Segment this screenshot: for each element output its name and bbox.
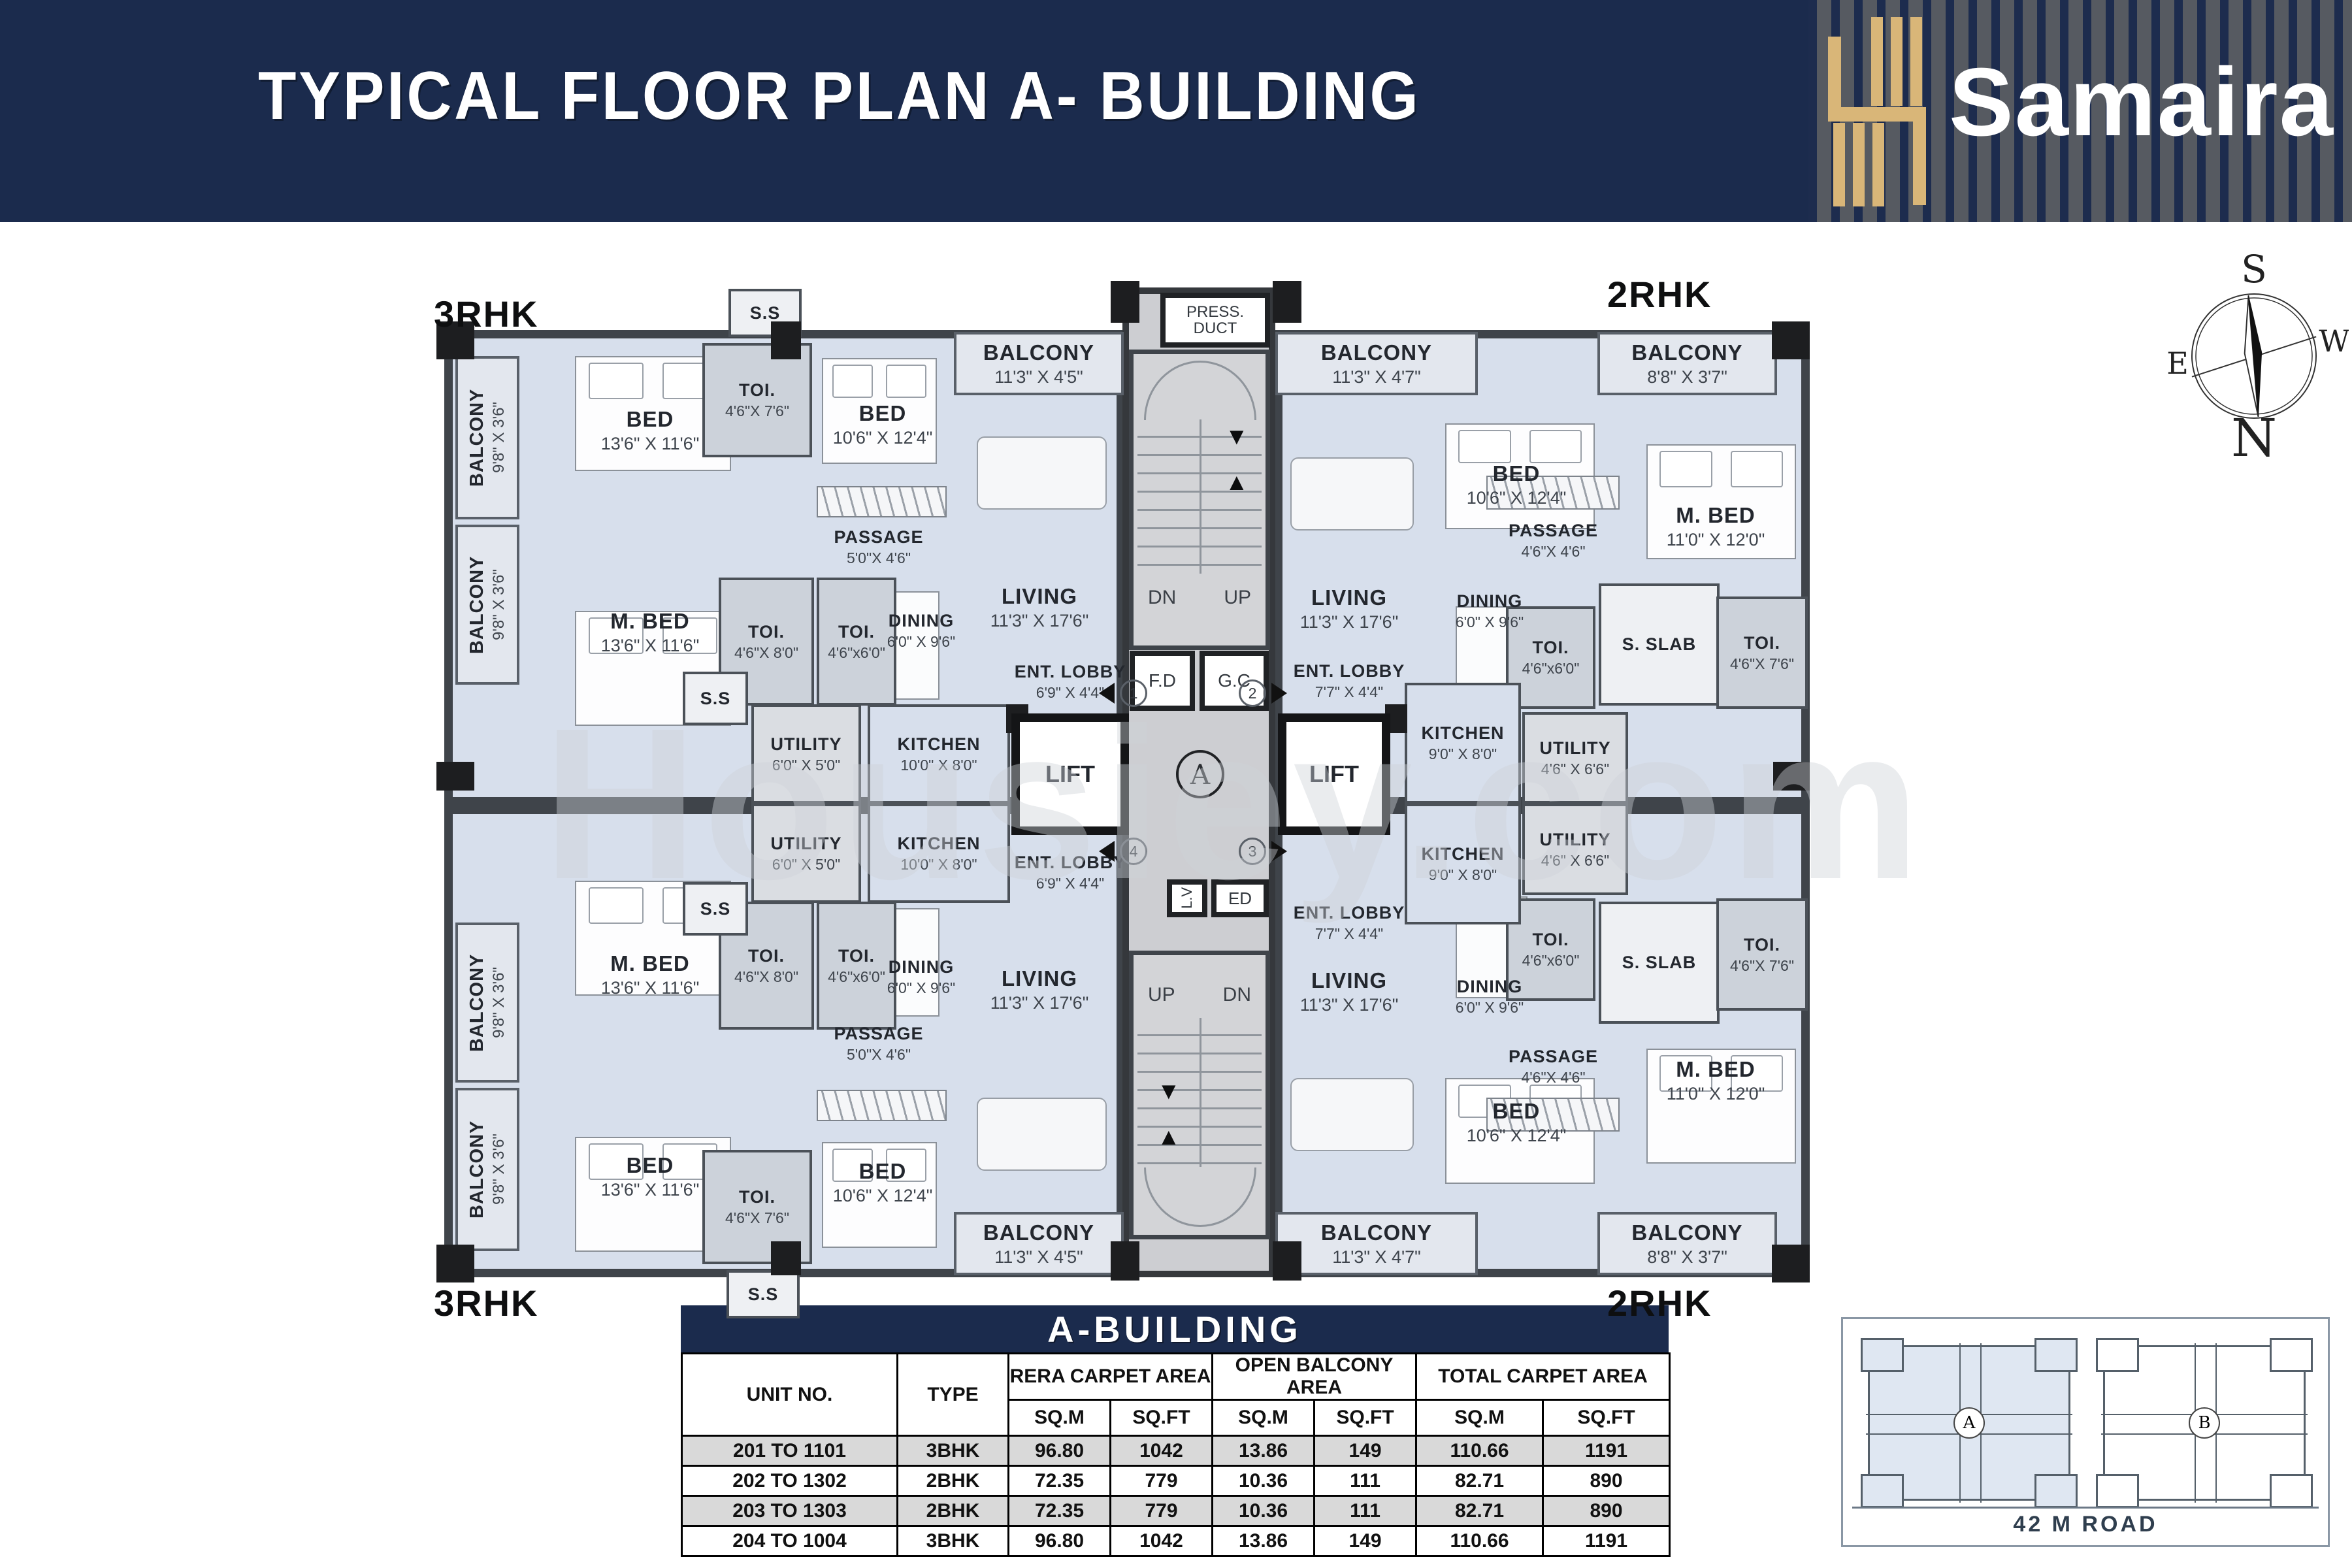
road-line (1852, 1507, 2319, 1509)
room-passage: PASSAGE5'0"X 4'6" (810, 1019, 947, 1068)
room-balcony: BALCONY9'8" X 3'6" (455, 356, 519, 519)
compass-south: S (2241, 248, 2267, 291)
room-utility: UTILITY4'6" X 6'6" (1522, 712, 1628, 804)
subcol-sqm: SQ.M (1009, 1400, 1111, 1436)
building-wing (1861, 1338, 1904, 1372)
unit-label-2rhk-bottom: 2RHK (1607, 1282, 1712, 1324)
compass-east: E (2166, 346, 2189, 381)
key-map-badge-b: B (2189, 1407, 2220, 1439)
arrow-down-icon: ▼ (1157, 1079, 1181, 1103)
room-kitchen: KITCHEN10'0" X 8'0" (868, 704, 1010, 804)
brand-panel: Samaira (1808, 0, 2352, 222)
key-map-badge-a: A (1953, 1407, 1985, 1439)
building-badge-a: A (1176, 750, 1224, 798)
stair-divider (1200, 419, 1201, 574)
wardrobe-hatch (817, 486, 947, 517)
table-title: A-BUILDING (681, 1305, 1669, 1352)
table-row: 204 TO 10043BHK 96.801042 13.86149 110.6… (682, 1526, 1670, 1556)
room-master-bed: M. BED11'0" X 12'0" (1622, 953, 1810, 1209)
building-wing (2096, 1338, 2139, 1372)
compass-rose: S N E W (2166, 248, 2349, 464)
room-living: LIVING11'3" X 17'6" (1284, 570, 1414, 648)
header-bar: TYPICAL FLOOR PLAN A- BUILDING Samaira (0, 0, 2352, 222)
building-wing (1861, 1474, 1904, 1508)
entry-marker-1: 1 (1099, 679, 1147, 707)
room-bed: BED13'6" X 11'6" (523, 345, 777, 516)
sofa-furniture (1290, 1078, 1414, 1151)
lift-right: LIFT (1278, 713, 1390, 835)
room-master-bed: M. BED13'6" X 11'6" (523, 862, 777, 1087)
room-bed: BED10'6" X 12'4" (817, 1124, 948, 1241)
door-triangle-icon (1099, 683, 1115, 704)
room-service-shaft: S.S (727, 1270, 800, 1318)
building-wing (2034, 1474, 2078, 1508)
col-open-balcony-area: OPEN BALCONY AREA (1213, 1354, 1416, 1400)
col-type: TYPE (898, 1354, 1009, 1436)
staircase-bottom: UP DN ▼ ▲ (1129, 951, 1270, 1239)
stair-arc (1144, 1168, 1256, 1227)
room-balcony: BALCONY11'3" X 4'7" (1275, 332, 1478, 395)
stair-dn-label: DN (1223, 984, 1251, 1006)
room-master-bed: M. BED11'0" X 12'0" (1622, 399, 1810, 655)
wall-column (1773, 762, 1810, 791)
room-balcony: BALCONY11'3" X 4'7" (1275, 1212, 1478, 1275)
room-living: LIVING11'3" X 17'6" (958, 568, 1121, 647)
entry-marker-4: 4 (1099, 838, 1147, 865)
room-bed: BED13'6" X 11'6" (523, 1091, 777, 1262)
unit-label-2rhk-top: 2RHK (1607, 273, 1712, 316)
wall-column (1273, 1241, 1301, 1281)
wall-column (436, 762, 474, 791)
key-map: A B 42 M ROAD (1841, 1317, 2330, 1547)
key-map-building-b: B (2103, 1345, 2306, 1501)
room-entrance-lobby: ENT. LOBBY7'7" X 4'4" (1284, 894, 1414, 951)
wall-column (1772, 1245, 1810, 1282)
building-wing (2034, 1338, 2078, 1372)
room-kitchen: KITCHEN9'0" X 8'0" (1405, 804, 1521, 924)
door-triangle-icon (1271, 841, 1287, 862)
room-passage: PASSAGE4'6"X 4'6" (1483, 516, 1624, 565)
stair-dn-label: DN (1148, 587, 1176, 609)
table-row: 201 TO 11013BHK 96.801042 13.86149 110.6… (682, 1436, 1670, 1466)
room-entrance-lobby: ENT. LOBBY7'7" X 4'4" (1284, 652, 1414, 710)
door-triangle-icon (1099, 841, 1115, 862)
subcol-sqft: SQ.FT (1543, 1400, 1670, 1436)
room-utility: UTILITY4'6" X 6'6" (1522, 804, 1628, 895)
room-balcony: BALCONY9'8" X 3'6" (455, 923, 519, 1083)
room-balcony: BALCONY8'8" X 3'7" (1597, 332, 1777, 395)
building-wing (2096, 1474, 2139, 1508)
unit-label-3rhk-top: 3RHK (434, 293, 538, 335)
wall-column (1111, 281, 1139, 323)
subcol-sqm: SQ.M (1416, 1400, 1543, 1436)
room-balcony: BALCONY8'8" X 3'7" (1597, 1212, 1777, 1275)
light-vent-box: L.V (1167, 879, 1207, 917)
table-row: 203 TO 13032BHK 72.35779 10.36111 82.718… (682, 1496, 1670, 1526)
stair-divider (1200, 1018, 1201, 1167)
room-balcony: BALCONY11'3" X 4'5" (954, 1212, 1124, 1275)
wall-column (1772, 321, 1810, 359)
lift-left: LIFT (1011, 713, 1129, 835)
room-passage: PASSAGE4'6"X 4'6" (1483, 1042, 1624, 1091)
room-kitchen: KITCHEN10'0" X 8'0" (868, 804, 1010, 903)
arrow-up-icon: ▲ (1225, 470, 1249, 494)
arrow-up-icon: ▲ (1157, 1125, 1181, 1149)
area-table: A-BUILDING UNIT NO. TYPE RERA CARPET ARE… (681, 1305, 1669, 1557)
compass-north: N (2231, 408, 2277, 464)
wall-column (1273, 281, 1301, 323)
stair-up-label: UP (1148, 984, 1175, 1006)
col-rera-carpet-area: RERA CARPET AREA (1009, 1354, 1213, 1400)
electrical-duct-box: ED (1211, 879, 1269, 917)
brand-name: Samaira (1949, 47, 2334, 158)
wall-column (771, 321, 801, 359)
sofa-furniture (977, 436, 1107, 510)
arrow-down-icon: ▼ (1225, 425, 1249, 448)
room-balcony: BALCONY9'8" X 3'6" (455, 1088, 519, 1251)
subcol-sqft: SQ.FT (1111, 1400, 1213, 1436)
sofa-furniture (1290, 457, 1414, 531)
entry-marker-3: 3 (1239, 838, 1287, 865)
wall-column (771, 1241, 801, 1275)
subcol-sqm: SQ.M (1213, 1400, 1315, 1436)
wardrobe-hatch (817, 1090, 947, 1121)
key-map-building-a: A (1868, 1345, 2070, 1501)
brand-logo-mark (1828, 17, 1939, 206)
building-wing (2270, 1338, 2313, 1372)
col-total-carpet-area: TOTAL CARPET AREA (1416, 1354, 1670, 1400)
stair-up-label: UP (1224, 587, 1251, 609)
building-wing (2270, 1474, 2313, 1508)
room-living: LIVING11'3" X 17'6" (958, 951, 1121, 1029)
table-row: 202 TO 13022BHK 72.35779 10.36111 82.718… (682, 1466, 1670, 1496)
wall-column (436, 1245, 474, 1282)
room-balcony: BALCONY9'8" X 3'6" (455, 525, 519, 685)
room-passage: PASSAGE5'0"X 4'6" (810, 523, 947, 572)
room-dining: DINING6'0" X 9'6" (1437, 574, 1542, 649)
subcol-sqft: SQ.FT (1315, 1400, 1416, 1436)
col-unit-no: UNIT NO. (682, 1354, 898, 1436)
room-master-bed: M. BED13'6" X 11'6" (523, 520, 777, 745)
door-triangle-icon (1271, 683, 1287, 704)
room-kitchen: KITCHEN9'0" X 8'0" (1405, 683, 1521, 804)
stair-arc (1144, 361, 1256, 420)
entry-marker-2: 2 (1239, 679, 1287, 707)
compass-west: W (2319, 323, 2349, 359)
press-duct: PRESS. DUCT (1160, 293, 1270, 348)
room-balcony: BALCONY11'3" X 4'5" (954, 332, 1124, 395)
unit-label-3rhk-bottom: 3RHK (434, 1282, 538, 1324)
room-bed: BED10'6" X 12'4" (817, 366, 948, 483)
road-label: 42 M ROAD (1843, 1512, 2328, 1537)
wall-column (1111, 1241, 1139, 1281)
staircase-top: ▼ ▲ DN UP (1129, 350, 1270, 650)
sofa-furniture (977, 1098, 1107, 1171)
page-title: TYPICAL FLOOR PLAN A- BUILDING (258, 57, 1420, 135)
room-living: LIVING11'3" X 17'6" (1284, 953, 1414, 1031)
room-dining: DINING6'0" X 9'6" (1437, 959, 1542, 1034)
